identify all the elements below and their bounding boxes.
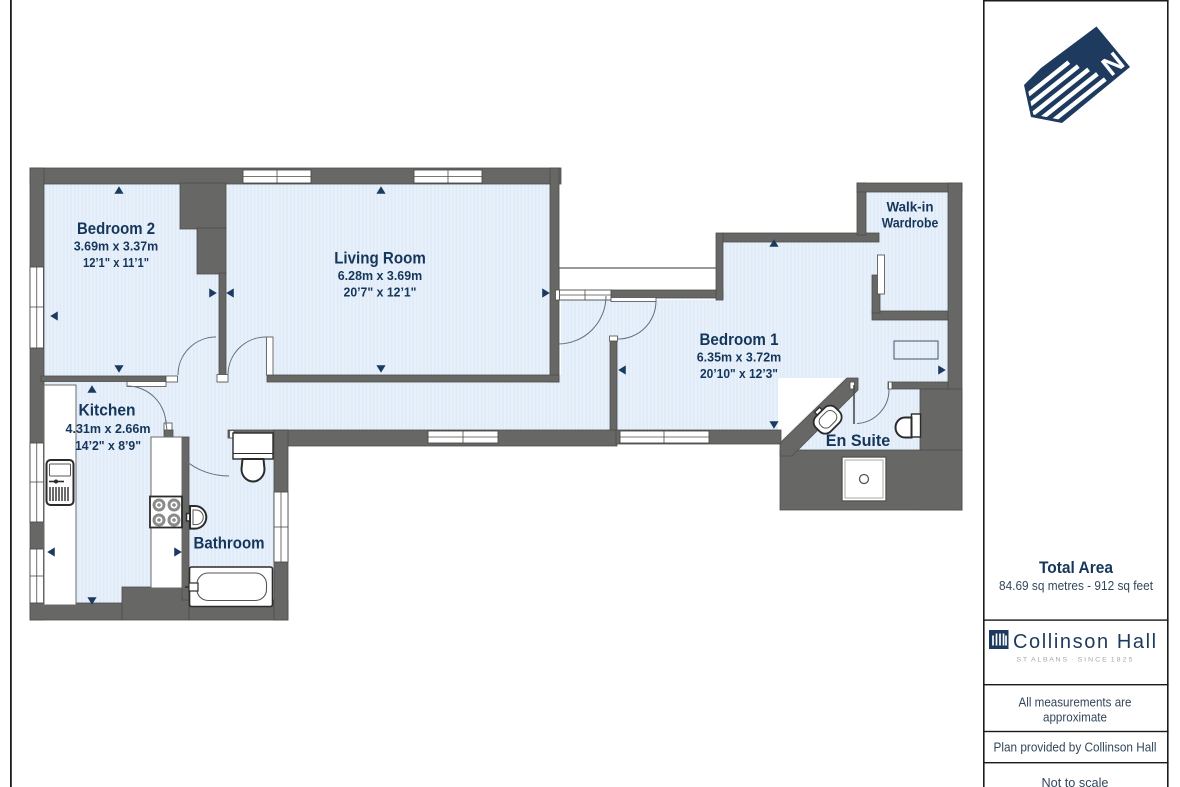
svg-text:Bedroom 1: Bedroom 1 [700, 331, 779, 349]
svg-text:6.35m x 3.72m: 6.35m x 3.72m [697, 350, 782, 365]
svg-text:84.69 sq metres - 912 sq feet: 84.69 sq metres - 912 sq feet [999, 578, 1153, 593]
svg-text:20’10" x 12’3": 20’10" x 12’3" [700, 366, 778, 381]
svg-text:Walk-in: Walk-in [887, 199, 934, 215]
svg-text:4.31m x 2.66m: 4.31m x 2.66m [66, 421, 151, 436]
svg-text:Total Area: Total Area [1039, 559, 1114, 577]
svg-text:S T A L B A N S · S I N C E: S T A L B A N S · S I N C E 1 8 2 5 [1016, 656, 1132, 663]
svg-text:Living Room: Living Room [334, 250, 426, 268]
svg-text:3.69m x 3.37m: 3.69m x 3.37m [74, 239, 159, 254]
svg-text:Bedroom 2: Bedroom 2 [77, 220, 155, 238]
svg-text:Bathroom: Bathroom [194, 535, 265, 553]
svg-text:All measurements are: All measurements are [1019, 695, 1132, 710]
svg-text:12’1" x 11’1": 12’1" x 11’1" [83, 255, 149, 270]
svg-text:20’7" x 12’1": 20’7" x 12’1" [344, 285, 417, 300]
svg-text:14’2" x 8’9": 14’2" x 8’9" [75, 438, 141, 453]
svg-text:Kitchen: Kitchen [79, 402, 136, 420]
svg-text:6.28m x 3.69m: 6.28m x 3.69m [338, 268, 423, 283]
svg-text:Wardrobe: Wardrobe [882, 215, 939, 231]
svg-text:Collinson Hall: Collinson Hall [1013, 631, 1158, 653]
svg-text:Plan provided by Collinson Hal: Plan provided by Collinson Hall [994, 739, 1157, 754]
svg-text:En Suite: En Suite [826, 432, 891, 450]
svg-text:Not to scale: Not to scale [1042, 775, 1109, 787]
svg-text:approximate: approximate [1043, 709, 1107, 724]
